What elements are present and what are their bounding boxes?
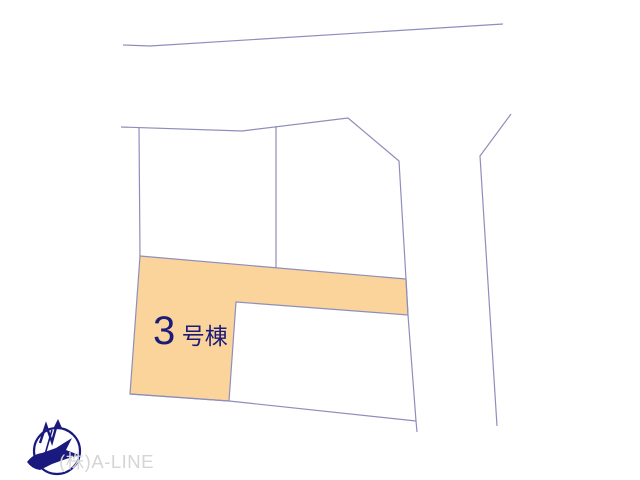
- parcel-boundary-bottom: [130, 394, 416, 421]
- company-name: (株)A-LINE: [59, 451, 154, 472]
- plot-3-label-suffix: 号棟: [182, 323, 228, 349]
- plot-map-canvas: 3 号棟 (株)A-LINE: [0, 0, 640, 480]
- plot-map-page: 3 号棟 (株)A-LINE: [0, 0, 640, 480]
- plot-3-label-number: 3: [153, 309, 175, 353]
- road-edge-right: [480, 114, 511, 426]
- road-edge-top: [123, 24, 503, 46]
- north-arrow-head: [54, 419, 62, 428]
- parcel-boundary-left: [139, 128, 140, 256]
- parcel-boundary-top: [121, 118, 348, 131]
